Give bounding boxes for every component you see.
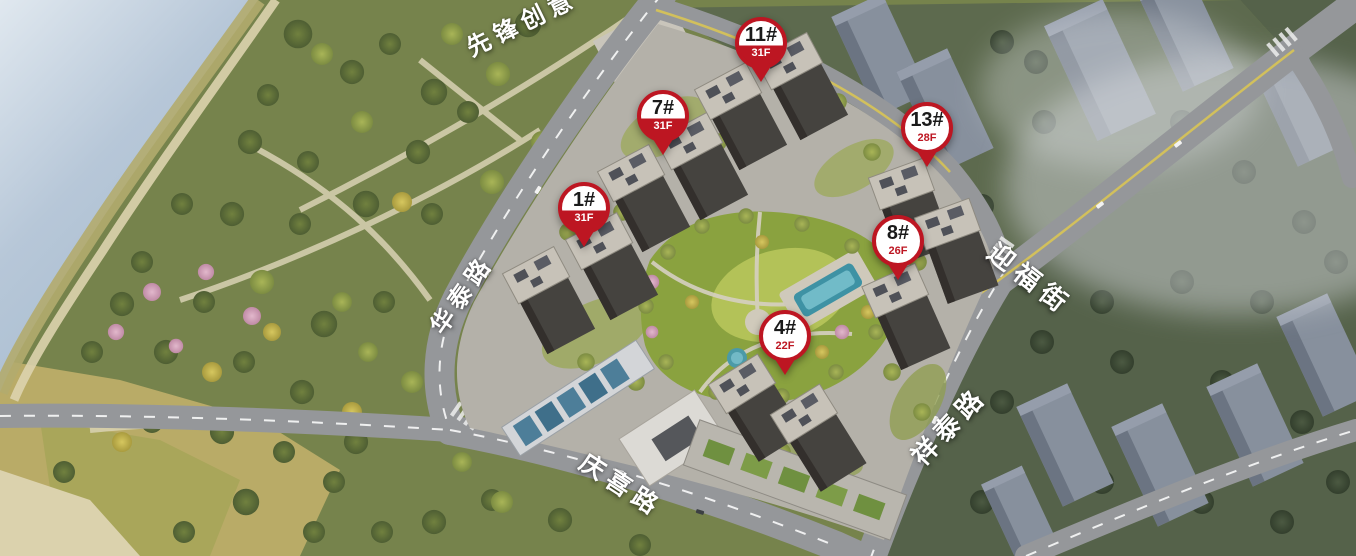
building-number: 7# bbox=[652, 98, 674, 119]
marker-building-13[interactable]: 13# 28F bbox=[895, 102, 959, 180]
building-number: 8# bbox=[887, 223, 909, 244]
marker-head: 7# 31F bbox=[637, 90, 689, 142]
building-floors: 31F bbox=[654, 120, 673, 133]
marker-building-4[interactable]: 4# 22F bbox=[753, 310, 817, 388]
building-floors: 22F bbox=[776, 340, 795, 353]
building-number: 4# bbox=[774, 318, 796, 339]
marker-head: 13# 28F bbox=[901, 102, 953, 154]
building-number: 13# bbox=[910, 110, 943, 131]
marker-building-11[interactable]: 11# 31F bbox=[729, 17, 793, 95]
marker-building-8[interactable]: 8# 26F bbox=[866, 215, 930, 293]
city-haze bbox=[980, 10, 1260, 170]
marker-head: 4# 22F bbox=[759, 310, 811, 362]
marker-head: 8# 26F bbox=[872, 215, 924, 267]
building-number: 11# bbox=[745, 25, 777, 46]
aerial-site-plan: 先锋创意 华泰路 迎福街 祥泰路 庆喜路 1# 31F 4# 22F 7# 31… bbox=[0, 0, 1356, 556]
marker-head: 1# 31F bbox=[558, 182, 610, 234]
building-floors: 31F bbox=[575, 212, 594, 225]
building-number: 1# bbox=[573, 190, 595, 211]
marker-building-1[interactable]: 1# 31F bbox=[552, 182, 616, 260]
pond bbox=[731, 352, 743, 364]
marker-head: 11# 31F bbox=[735, 17, 787, 69]
building-floors: 26F bbox=[889, 245, 908, 258]
marker-building-7[interactable]: 7# 31F bbox=[631, 90, 695, 168]
aerial-rendering bbox=[0, 0, 1356, 556]
building-floors: 31F bbox=[752, 47, 771, 60]
building-floors: 28F bbox=[918, 132, 937, 145]
